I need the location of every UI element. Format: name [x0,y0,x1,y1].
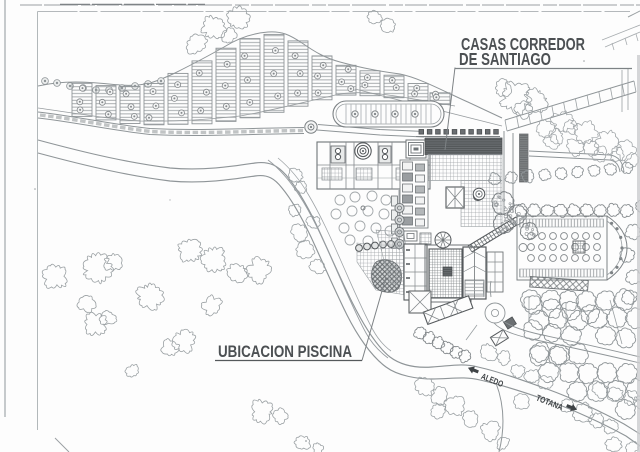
svg-text:DE SANTIAGO: DE SANTIAGO [459,49,551,69]
svg-text:UBICACION PISCINA: UBICACION PISCINA [218,343,352,361]
